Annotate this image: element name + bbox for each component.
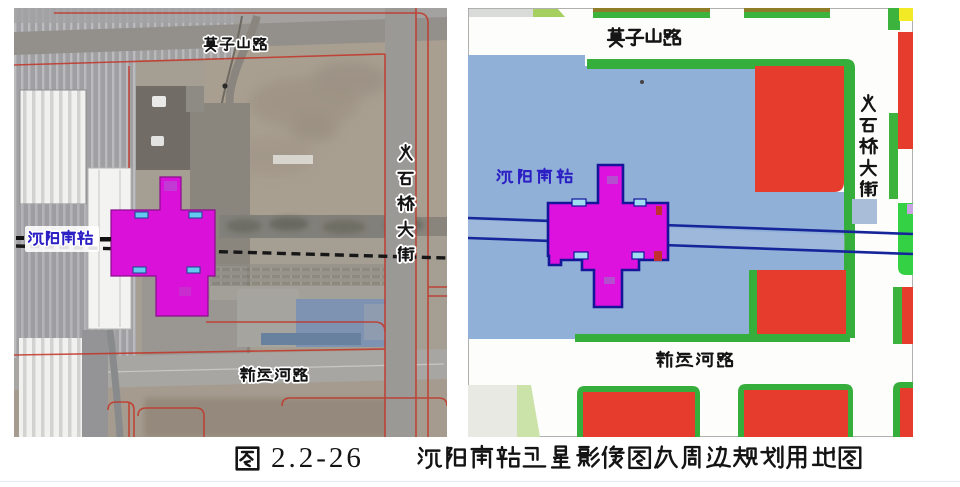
svg-text:2.2-26: 2.2-26: [271, 442, 364, 474]
